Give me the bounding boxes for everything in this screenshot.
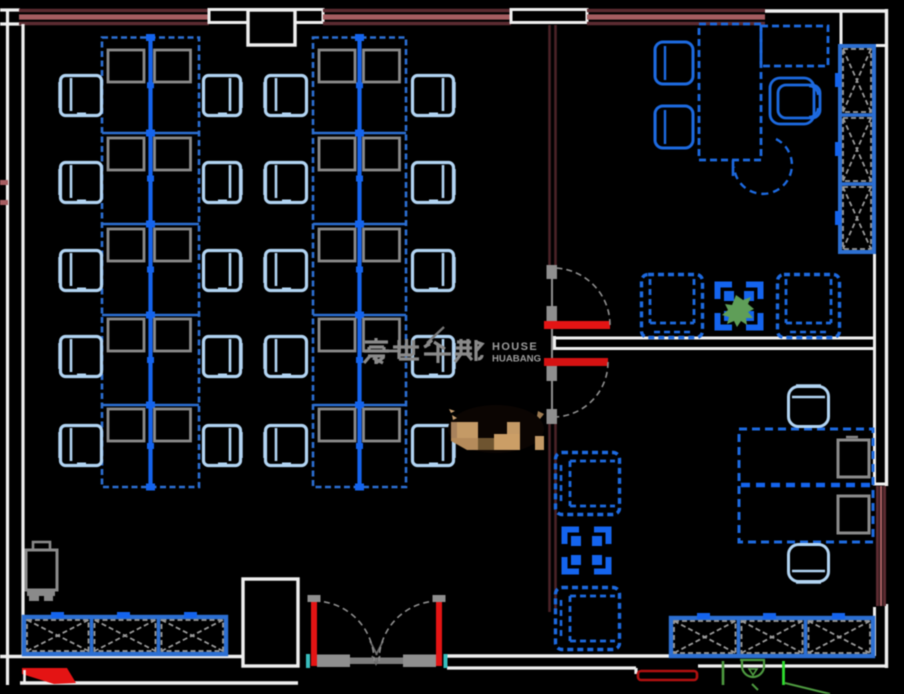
svg-text:HOUSE: HOUSE — [492, 341, 538, 353]
svg-text:HUABANG: HUABANG — [492, 354, 541, 365]
